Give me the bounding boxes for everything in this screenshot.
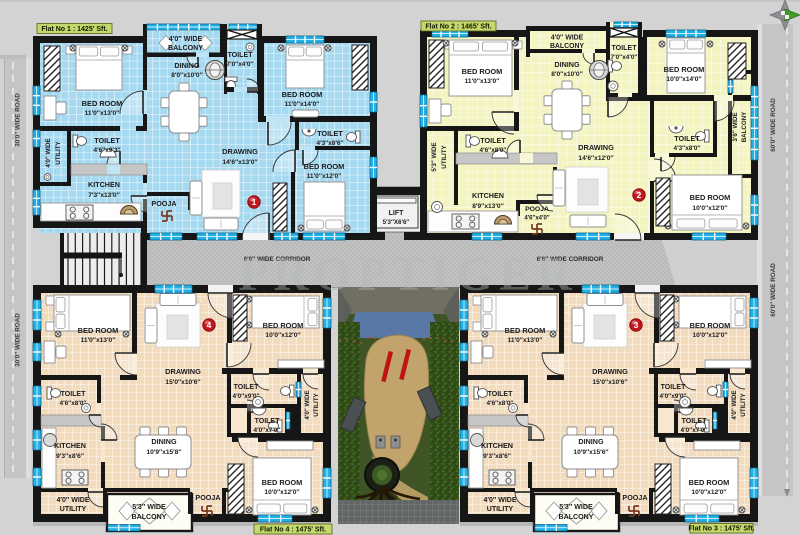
svg-text:KITCHEN: KITCHEN <box>88 180 120 189</box>
svg-text:5′3″ WIDE: 5′3″ WIDE <box>431 142 438 171</box>
svg-text:4′3″x8′6″: 4′3″x8′6″ <box>317 140 344 147</box>
svg-text:30′0″ WIDE ROAD: 30′0″ WIDE ROAD <box>15 93 22 147</box>
svg-text:60′0″ WIDE ROAD: 60′0″ WIDE ROAD <box>770 98 777 152</box>
svg-text:4′6″x4′0″: 4′6″x4′0″ <box>524 216 549 222</box>
svg-text:TOILET: TOILET <box>234 384 259 391</box>
svg-text:POOJA: POOJA <box>151 199 176 208</box>
svg-text:KITCHEN: KITCHEN <box>54 441 86 450</box>
svg-text:UTILITY: UTILITY <box>740 392 747 416</box>
svg-text:11′0″x12′0″: 11′0″x12′0″ <box>307 173 343 180</box>
svg-text:BED ROOM: BED ROOM <box>505 326 546 335</box>
svg-text:8′9″x13′0″: 8′9″x13′0″ <box>472 203 504 210</box>
svg-text:TOILET: TOILET <box>94 136 120 145</box>
svg-text:8′0″x10′0″: 8′0″x10′0″ <box>171 72 203 79</box>
svg-text:TOILET: TOILET <box>480 136 506 145</box>
svg-text:10′0″x14′0″: 10′0″x14′0″ <box>666 76 702 83</box>
svg-text:TOILET: TOILET <box>255 418 280 425</box>
svg-text:3: 3 <box>634 320 639 330</box>
svg-text:4′6″x8′0″: 4′6″x8′0″ <box>60 400 87 407</box>
svg-text:4′0″x9′0″: 4′0″x9′0″ <box>233 393 260 400</box>
svg-text:BED ROOM: BED ROOM <box>690 321 731 330</box>
svg-text:BED ROOM: BED ROOM <box>664 65 705 74</box>
svg-text:10′0″x12′0″: 10′0″x12′0″ <box>692 332 728 339</box>
svg-text:BALCONY: BALCONY <box>550 43 584 50</box>
svg-text:4′0″ WIDE: 4′0″ WIDE <box>731 390 738 419</box>
svg-text:BALCONY: BALCONY <box>741 111 748 142</box>
svg-text:5′3″ WIDE: 5′3″ WIDE <box>132 503 166 511</box>
svg-text:4′6″x9′3″: 4′6″x9′3″ <box>94 147 121 154</box>
svg-text:TOILET: TOILET <box>317 129 343 138</box>
svg-text:TOILET: TOILET <box>488 391 513 398</box>
svg-text:DINING: DINING <box>151 437 177 446</box>
svg-text:TOILET: TOILET <box>227 51 253 59</box>
svg-text:10′9″x15′8″: 10′9″x15′8″ <box>146 449 182 456</box>
svg-text:Flat No 2 : 1465′ Sft.: Flat No 2 : 1465′ Sft. <box>425 24 491 31</box>
svg-text:UTILITY: UTILITY <box>60 506 87 513</box>
svg-text:8′0″x10′0″: 8′0″x10′0″ <box>551 71 583 78</box>
svg-text:BED ROOM: BED ROOM <box>690 193 731 202</box>
svg-text:14′6″x13′0″: 14′6″x13′0″ <box>222 159 258 166</box>
svg-text:4′0″x7′0″: 4′0″x7′0″ <box>681 427 708 434</box>
svg-text:DRAWING: DRAWING <box>165 367 201 376</box>
svg-text:TOILET: TOILET <box>661 384 686 391</box>
svg-text:DINING: DINING <box>554 60 580 69</box>
svg-text:4′3″x8′0″: 4′3″x8′0″ <box>674 145 701 152</box>
svg-text:Flat No 3 : 1475′ Sft.: Flat No 3 : 1475′ Sft. <box>688 526 754 533</box>
svg-text:4′0″ WIDE: 4′0″ WIDE <box>45 138 52 167</box>
svg-text:UTILITY: UTILITY <box>487 506 514 513</box>
svg-text:DRAWING: DRAWING <box>222 147 258 156</box>
svg-text:7′0″x4′0″: 7′0″x4′0″ <box>227 61 254 68</box>
svg-text:9′3″x8′6″: 9′3″x8′6″ <box>483 453 512 460</box>
svg-text:11′0″x13′0″: 11′0″x13′0″ <box>508 337 544 344</box>
svg-text:LIFT: LIFT <box>389 210 404 217</box>
svg-text:BALCONY: BALCONY <box>131 513 166 521</box>
svg-text:TOILET: TOILET <box>61 391 86 398</box>
svg-text:15′0″x10′6″: 15′0″x10′6″ <box>592 379 628 386</box>
svg-text:4′0″ WIDE: 4′0″ WIDE <box>551 35 584 42</box>
svg-text:DRAWING: DRAWING <box>578 143 614 152</box>
svg-text:KITCHEN: KITCHEN <box>481 441 513 450</box>
svg-text:BED ROOM: BED ROOM <box>263 321 304 330</box>
svg-text:60′0″ WIDE ROAD: 60′0″ WIDE ROAD <box>770 263 777 317</box>
svg-text:4′6″x8′0″: 4′6″x8′0″ <box>480 147 507 154</box>
svg-text:Flat No 1 : 1425′ Sft.: Flat No 1 : 1425′ Sft. <box>41 26 107 33</box>
svg-text:UTILITY: UTILITY <box>55 140 62 164</box>
svg-text:BED ROOM: BED ROOM <box>304 162 345 171</box>
svg-text:30′0″ WIDE ROAD: 30′0″ WIDE ROAD <box>15 313 22 367</box>
svg-text:POOJA: POOJA <box>195 493 220 502</box>
svg-text:TOILET: TOILET <box>682 418 707 425</box>
svg-text:10′0″x12′0″: 10′0″x12′0″ <box>264 489 300 496</box>
svg-text:UTILITY: UTILITY <box>441 144 448 168</box>
svg-text:15′0″x10′6″: 15′0″x10′6″ <box>165 379 201 386</box>
svg-text:4′0″ WIDE: 4′0″ WIDE <box>304 390 311 419</box>
svg-text:DRAWING: DRAWING <box>592 367 628 376</box>
svg-text:4′0″ WIDE: 4′0″ WIDE <box>169 35 203 43</box>
svg-text:BED ROOM: BED ROOM <box>282 90 323 99</box>
svg-text:BED ROOM: BED ROOM <box>462 67 503 76</box>
svg-text:4′0″ WIDE: 4′0″ WIDE <box>56 497 89 504</box>
svg-text:14′6″x12′0″: 14′6″x12′0″ <box>578 155 614 162</box>
svg-text:TOILET: TOILET <box>674 134 700 143</box>
svg-text:4: 4 <box>207 320 212 330</box>
svg-text:4′0″x7′0″: 4′0″x7′0″ <box>254 427 281 434</box>
svg-text:4′6″x8′0″: 4′6″x8′0″ <box>487 400 514 407</box>
svg-text:10′0″x12′0″: 10′0″x12′0″ <box>691 489 727 496</box>
svg-text:3′6″ WIDE: 3′6″ WIDE <box>732 112 739 141</box>
svg-text:7′3″x13′0″: 7′3″x13′0″ <box>88 192 120 199</box>
svg-text:BED ROOM: BED ROOM <box>262 478 303 487</box>
svg-text:POOJA: POOJA <box>525 206 549 213</box>
svg-text:UTILITY: UTILITY <box>313 392 320 416</box>
svg-text:BALCONY: BALCONY <box>168 44 203 52</box>
svg-text:BED ROOM: BED ROOM <box>82 99 123 108</box>
svg-text:11′0″x13′0″: 11′0″x13′0″ <box>465 78 501 85</box>
svg-text:Flat No 4 : 1475′ Sft.: Flat No 4 : 1475′ Sft. <box>260 527 326 534</box>
svg-text:DINING: DINING <box>578 437 604 446</box>
svg-text:2: 2 <box>637 190 642 200</box>
svg-text:11′0″x14′0″: 11′0″x14′0″ <box>285 101 321 108</box>
svg-text:4′0″ WIDE: 4′0″ WIDE <box>483 497 516 504</box>
svg-text:9′3″x8′6″: 9′3″x8′6″ <box>56 453 85 460</box>
svg-text:BALCONY: BALCONY <box>558 513 593 521</box>
svg-text:10′9″x15′6″: 10′9″x15′6″ <box>573 449 609 456</box>
svg-text:POOJA: POOJA <box>622 493 647 502</box>
svg-text:KITCHEN: KITCHEN <box>472 191 504 200</box>
svg-text:1: 1 <box>252 197 257 207</box>
svg-text:TOILET: TOILET <box>611 44 637 52</box>
svg-text:10′0″x12′0″: 10′0″x12′0″ <box>692 205 728 212</box>
svg-text:4′0″x9′0″: 4′0″x9′0″ <box>660 393 687 400</box>
svg-text:11′0″x13′0″: 11′0″x13′0″ <box>85 110 121 117</box>
svg-text:7′0″x4′0″: 7′0″x4′0″ <box>611 54 638 61</box>
svg-text:DINING: DINING <box>174 61 200 70</box>
svg-text:BED ROOM: BED ROOM <box>689 478 730 487</box>
svg-text:BED ROOM: BED ROOM <box>78 326 119 335</box>
svg-text:11′0″x13′0″: 11′0″x13′0″ <box>81 337 117 344</box>
svg-text:5′3″ WIDE: 5′3″ WIDE <box>559 503 593 511</box>
svg-text:10′0″x12′0″: 10′0″x12′0″ <box>265 332 301 339</box>
svg-text:PROPTIGER: PROPTIGER <box>238 248 577 301</box>
svg-text:5′3″X6′6″: 5′3″X6′6″ <box>383 219 410 226</box>
